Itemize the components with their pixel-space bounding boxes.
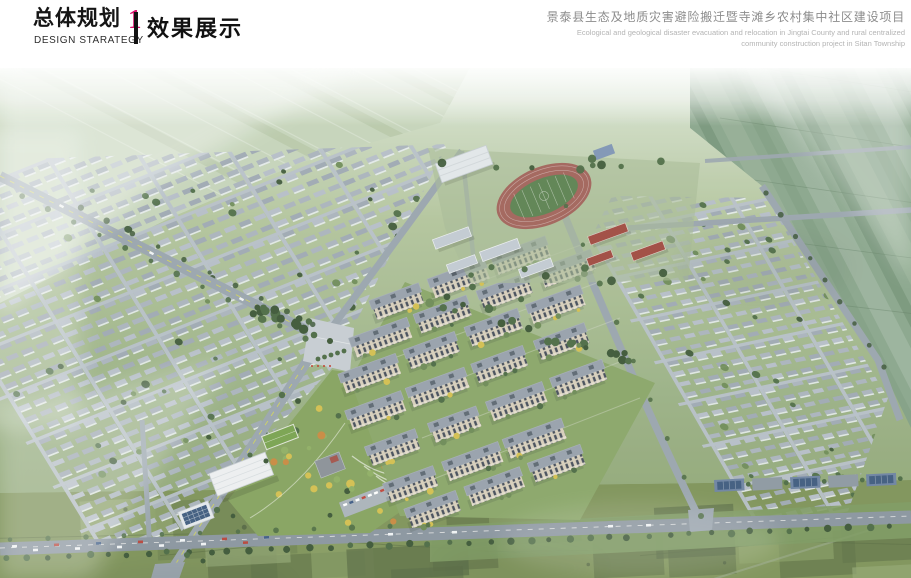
project-title-en: Ecological and geological disaster evacu… bbox=[577, 28, 905, 50]
section-subtitle: DESIGN STARATEGY bbox=[34, 35, 144, 46]
project-title-en-line2: community construction project in Sitan … bbox=[577, 39, 905, 50]
school-campus bbox=[428, 144, 700, 285]
section-title: 总体规划 bbox=[33, 4, 121, 34]
section-title-block: 总体规划 1 bbox=[33, 4, 142, 34]
aerial-rendering bbox=[0, 68, 911, 578]
project-title-cn: 景泰县生态及地质灾害避险搬迁暨寺滩乡农村集中社区建设项目 bbox=[547, 8, 905, 25]
aerial-rendering-area bbox=[0, 68, 911, 578]
project-title-en-line1: Ecological and geological disaster evacu… bbox=[577, 28, 905, 39]
page-title: 效果展示 bbox=[147, 11, 243, 43]
presentation-slide: 总体规划 1 DESIGN STARATEGY 效果展示 景泰县生态及地质灾害避… bbox=[0, 0, 911, 578]
header-divider bbox=[134, 12, 138, 44]
slide-header: 总体规划 1 DESIGN STARATEGY 效果展示 景泰县生态及地质灾害避… bbox=[0, 0, 911, 68]
